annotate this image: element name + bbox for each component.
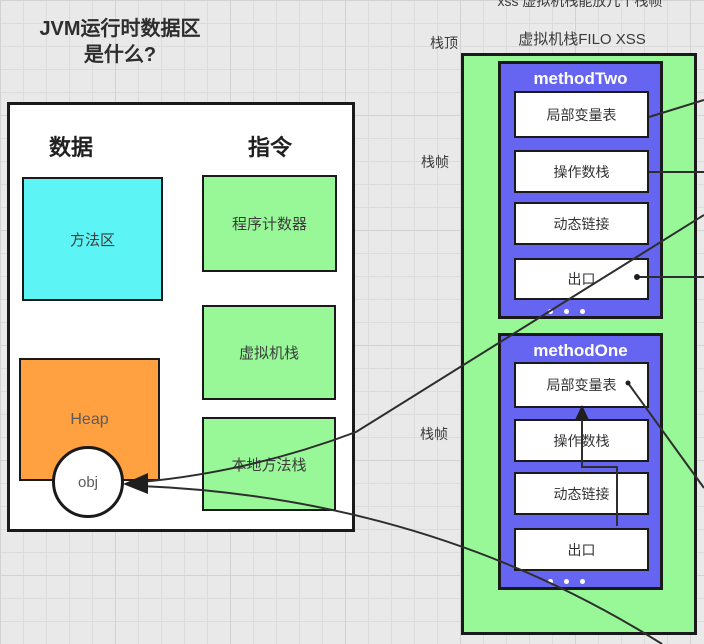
obj-label: obj — [78, 474, 98, 491]
vm-stack-label: 虚拟机栈 — [239, 342, 299, 363]
heap-label: Heap — [70, 411, 108, 429]
slot-label: 动态链接 — [554, 214, 610, 234]
slot-exit[interactable]: 出口 — [514, 528, 649, 571]
diagram-canvas: { "page": { "title_line1": "JVM运行时数据区", … — [0, 0, 704, 644]
frame-methodtwo-title: methodTwo — [501, 69, 660, 89]
slot-label: 出口 — [568, 269, 596, 289]
vm-stack-box[interactable]: 虚拟机栈 — [202, 305, 336, 400]
slot-label: 操作数栈 — [554, 162, 610, 182]
frame-methodone-title: methodOne — [501, 341, 660, 361]
stack-caption: 虚拟机栈FILO XSS — [493, 28, 671, 49]
method-area-label: 方法区 — [70, 229, 115, 250]
program-counter-label: 程序计数器 — [232, 213, 307, 234]
page-title: JVM运行时数据区 是什么? — [20, 16, 220, 68]
native-method-stack-label: 本地方法栈 — [231, 454, 306, 475]
slot-local-variable-table[interactable]: 局部变量表 — [514, 91, 649, 138]
stack-frame-methodone[interactable]: methodOne 局部变量表 操作数栈 动态链接 出口 — [498, 333, 663, 590]
slot-label: 局部变量表 — [547, 105, 617, 125]
data-column-header: 数据 — [31, 130, 111, 162]
slot-label: 出口 — [568, 540, 596, 560]
label-stack-frame-upper: 栈帧 — [421, 152, 449, 172]
slot-dynamic-link[interactable]: 动态链接 — [514, 202, 649, 245]
slot-dynamic-link[interactable]: 动态链接 — [514, 472, 649, 515]
slot-label: 动态链接 — [554, 484, 610, 504]
label-stack-frame-lower: 栈帧 — [420, 424, 448, 444]
ellipsis-dots — [548, 579, 585, 584]
slot-operand-stack[interactable]: 操作数栈 — [514, 419, 649, 462]
stack-frame-methodtwo[interactable]: methodTwo 局部变量表 操作数栈 动态链接 出口 — [498, 61, 663, 319]
label-stack-top: 栈顶 — [430, 33, 458, 53]
slot-label: 操作数栈 — [554, 431, 610, 451]
program-counter-box[interactable]: 程序计数器 — [202, 175, 337, 272]
top-note: xss 虚拟机栈能放几个栈帧 — [462, 0, 698, 11]
ellipsis-dots — [548, 309, 585, 314]
native-method-stack-box[interactable]: 本地方法栈 — [202, 417, 336, 511]
page-title-line2: 是什么? — [20, 42, 220, 68]
page-title-line1: JVM运行时数据区 — [20, 16, 220, 42]
method-area-box[interactable]: 方法区 — [22, 177, 163, 301]
slot-label: 局部变量表 — [547, 375, 617, 395]
slot-local-variable-table[interactable]: 局部变量表 — [514, 362, 649, 408]
slot-operand-stack[interactable]: 操作数栈 — [514, 150, 649, 193]
obj-circle[interactable]: obj — [52, 446, 124, 518]
slot-exit[interactable]: 出口 — [514, 258, 649, 300]
instruction-column-header: 指令 — [230, 130, 310, 162]
